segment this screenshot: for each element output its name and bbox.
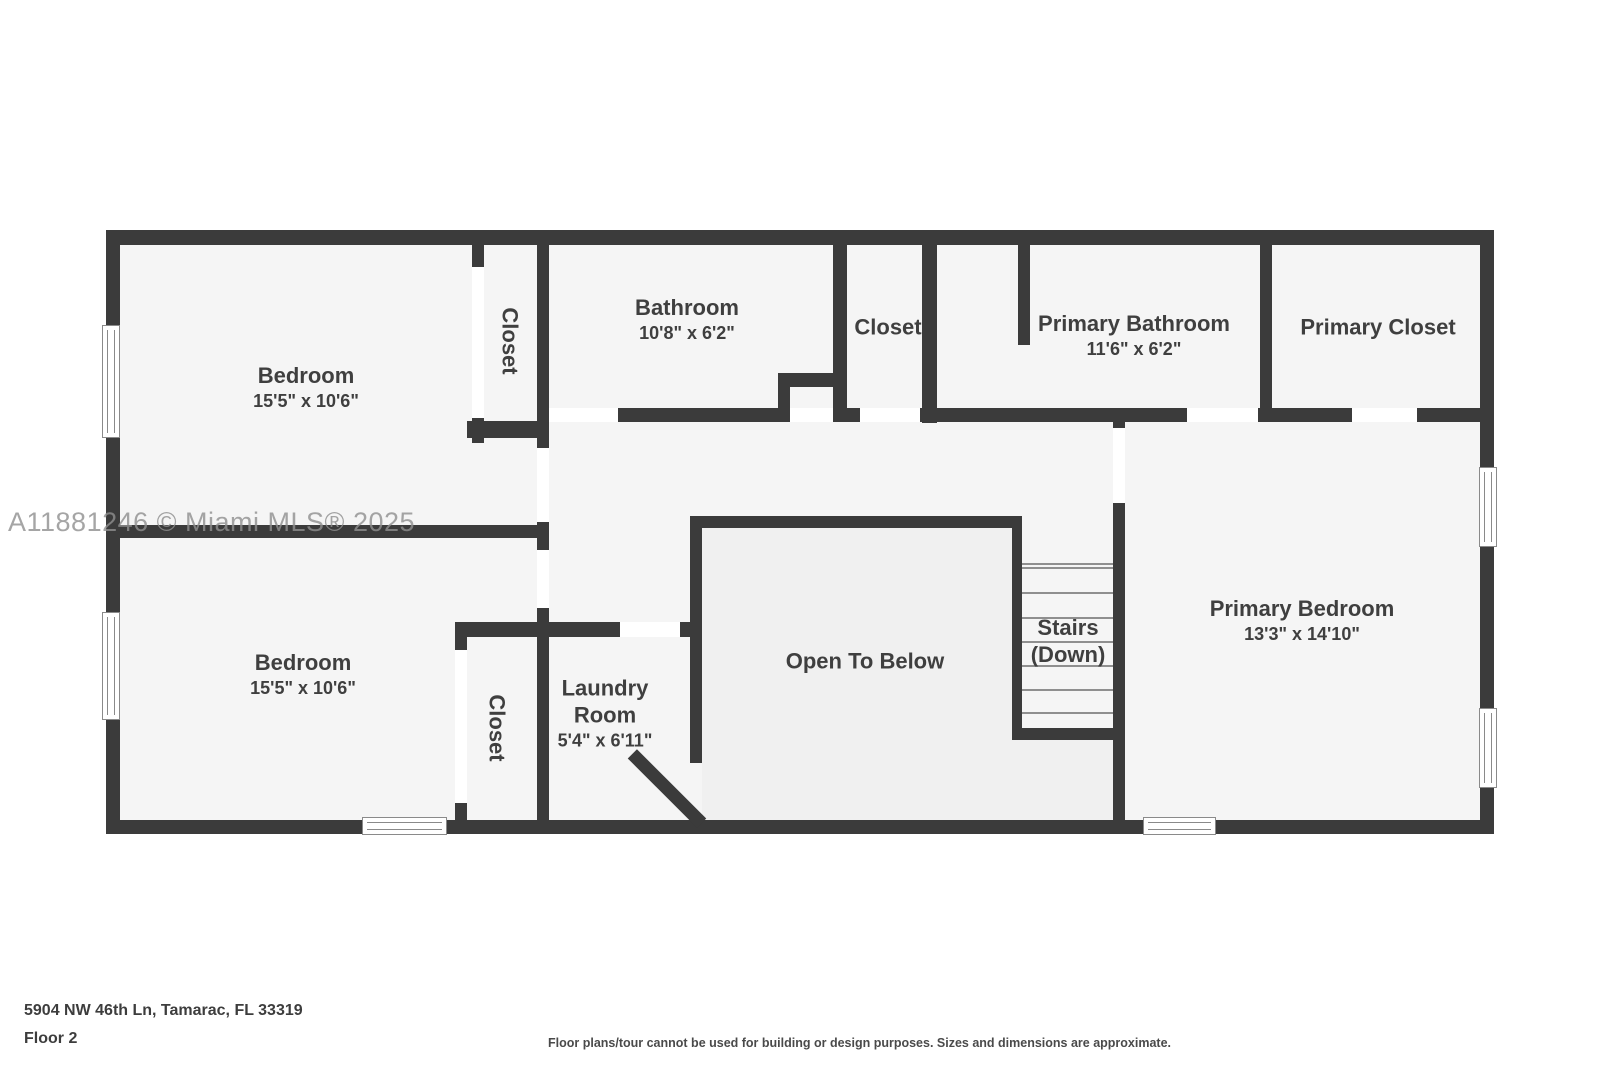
room-label-laundry: LaundryRoom5'4" x 6'11": [558, 675, 653, 754]
room-label-bathroom: Bathroom10'8" x 6'2": [635, 294, 739, 346]
wall-segment: [1417, 408, 1480, 422]
wall-segment: [1018, 245, 1030, 345]
stair-tread-line: [1022, 563, 1113, 565]
room-label-bedroom-top: Bedroom15'5" x 10'6": [253, 362, 359, 414]
room-name: Stairs: [1031, 614, 1106, 641]
door-opening: [1113, 428, 1125, 503]
wall-segment: [833, 408, 860, 422]
window-pane-lines: [107, 617, 115, 715]
wall-segment: [680, 622, 702, 637]
room-name-line2: Room: [558, 702, 653, 729]
room-label-primary-bedroom: Primary Bedroom13'3" x 14'10": [1210, 595, 1395, 647]
window-pane-lines: [1484, 713, 1492, 783]
wall-segment: [920, 408, 1187, 422]
room-name: Bedroom: [253, 362, 359, 389]
room-dimensions: 5'4" x 6'11": [558, 729, 653, 754]
door-opening: [549, 408, 618, 422]
door-opening: [537, 550, 549, 608]
door-opening: [860, 408, 920, 422]
room-dimensions: 15'5" x 10'6": [253, 389, 359, 414]
wall-segment: [1113, 503, 1125, 820]
wall-segment: [106, 230, 1494, 245]
room-label-open-to-below: Open To Below: [786, 648, 944, 675]
window-symbol: [1143, 817, 1216, 835]
room-name: Bedroom: [250, 649, 356, 676]
window-pane-lines: [1484, 472, 1492, 542]
wall-segment: [1012, 517, 1022, 738]
room-dimensions: 10'8" x 6'2": [635, 321, 739, 346]
door-opening: [537, 448, 549, 522]
room-name: Primary Closet: [1300, 314, 1455, 341]
room-label-stairs: Stairs(Down): [1031, 614, 1106, 668]
wall-segment: [1012, 728, 1125, 740]
wall-segment: [472, 245, 484, 267]
mls-watermark: A11881246 © Miami MLS® 2025: [8, 507, 415, 538]
door-opening: [790, 408, 833, 422]
wall-segment: [690, 516, 1022, 528]
room-name: Open To Below: [786, 648, 944, 675]
room-name: Bathroom: [635, 294, 739, 321]
wall-segment: [455, 622, 620, 637]
room-dimensions: 11'6" x 6'2": [1038, 337, 1230, 362]
room-name: Closet: [484, 694, 511, 761]
window-symbol: [102, 612, 120, 720]
stair-tread-line: [1022, 567, 1113, 569]
floor-number: Floor 2: [24, 1030, 77, 1048]
window-pane-lines: [1148, 822, 1211, 830]
wall-segment: [690, 516, 702, 763]
room-label-bedroom-bottom: Bedroom15'5" x 10'6": [250, 649, 356, 701]
door-opening: [1187, 408, 1258, 422]
wall-segment: [833, 245, 847, 422]
room-label-closet-bedroom-bottom: Closet: [484, 694, 511, 761]
window-pane-lines: [367, 822, 442, 830]
stair-tread-line: [1022, 689, 1113, 691]
window-symbol: [102, 325, 120, 438]
room-label-primary-closet: Primary Closet: [1300, 314, 1455, 341]
wall-segment: [1260, 245, 1272, 420]
window-symbol: [1479, 467, 1497, 547]
door-opening: [620, 622, 680, 637]
room-label-closet-bedroom-top: Closet: [497, 307, 524, 374]
room-name: Closet: [854, 314, 921, 341]
door-opening: [455, 650, 467, 803]
room-name: Primary Bathroom: [1038, 310, 1230, 337]
door-opening: [472, 267, 484, 418]
door-opening: [1352, 408, 1417, 422]
room-name: Primary Bedroom: [1210, 595, 1395, 622]
property-address: 5904 NW 46th Ln, Tamarac, FL 33319: [24, 1002, 303, 1020]
wall-segment: [537, 608, 549, 820]
wall-segment: [106, 820, 1494, 834]
window-pane-lines: [107, 330, 115, 433]
window-symbol: [1479, 708, 1497, 788]
wall-segment: [778, 373, 847, 387]
disclaimer-text: Floor plans/tour cannot be used for buil…: [548, 1036, 1171, 1050]
wall-segment: [537, 245, 549, 448]
wall-segment: [1258, 408, 1352, 422]
room-name-line2: (Down): [1031, 641, 1106, 668]
stair-tread-line: [1022, 712, 1113, 714]
stair-tread-line: [1022, 592, 1113, 594]
room-dimensions: 13'3" x 14'10": [1210, 622, 1395, 647]
window-symbol: [362, 817, 447, 835]
wall-segment: [922, 245, 937, 423]
room-dimensions: 15'5" x 10'6": [250, 676, 356, 701]
wall-segment: [467, 421, 549, 438]
room-label-primary-bathroom: Primary Bathroom11'6" x 6'2": [1038, 310, 1230, 362]
wall-segment: [618, 408, 790, 422]
wall-segment: [455, 803, 467, 820]
room-label-closet-hall: Closet: [854, 314, 921, 341]
room-name: Closet: [497, 307, 524, 374]
room-name: Laundry: [558, 675, 653, 702]
